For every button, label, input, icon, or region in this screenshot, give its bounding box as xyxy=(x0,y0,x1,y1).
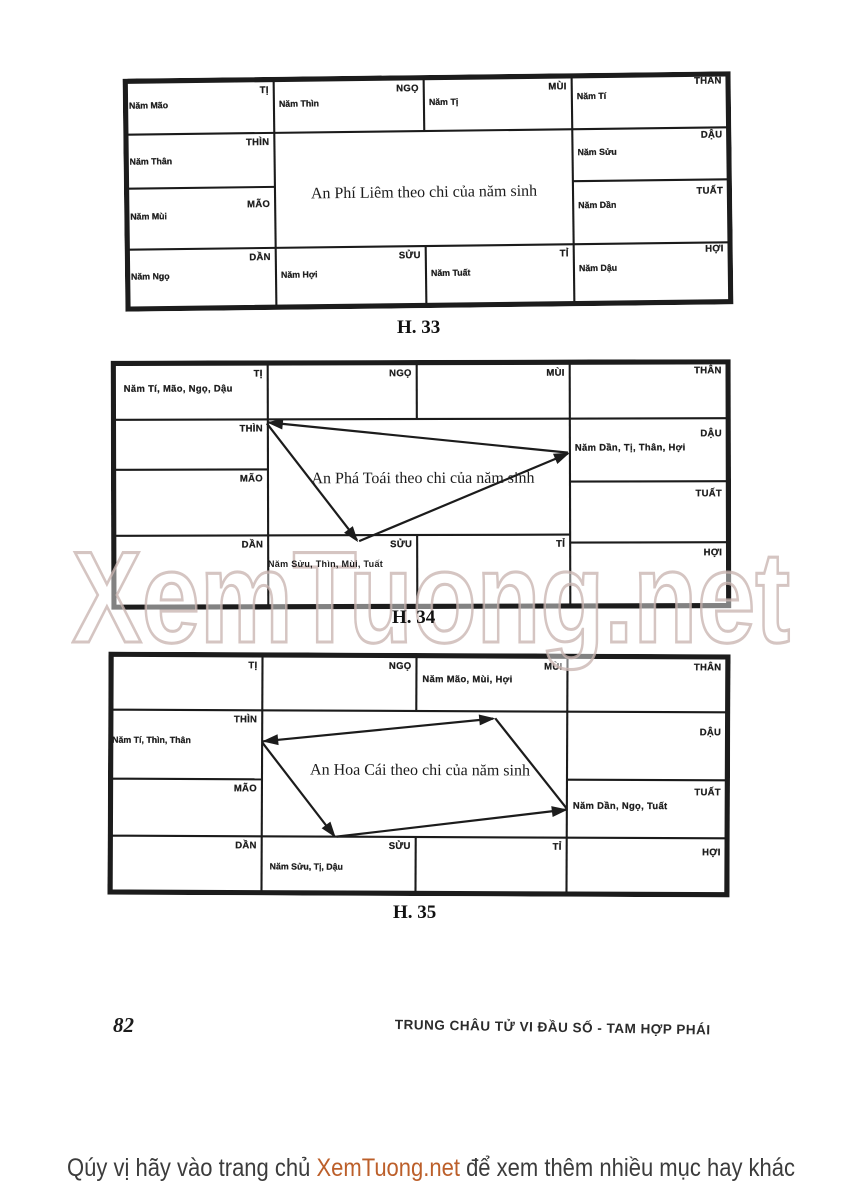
svg-text:An Hoa Cái theo chi của năm si: An Hoa Cái theo chi của năm sinh xyxy=(310,762,530,780)
svg-text:Năm Mùi: Năm Mùi xyxy=(130,211,167,221)
svg-text:Năm Sửu, Tị, Dậu: Năm Sửu, Tị, Dậu xyxy=(270,861,343,871)
svg-text:SỬU: SỬU xyxy=(389,840,411,852)
svg-text:THÂN: THÂN xyxy=(694,74,722,86)
svg-text:MÃO: MÃO xyxy=(234,783,257,794)
svg-text:Năm Tị: Năm Tị xyxy=(429,97,458,107)
svg-text:Năm Dậu: Năm Dậu xyxy=(579,263,617,273)
svg-text:Năm Mão: Năm Mão xyxy=(129,100,169,110)
svg-text:TUẤT: TUẤT xyxy=(694,787,721,798)
svg-text:Năm Tí, Thìn, Thân: Năm Tí, Thìn, Thân xyxy=(112,735,191,745)
svg-text:Năm Dần, Ngọ, Tuất: Năm Dần, Ngọ, Tuất xyxy=(573,800,668,811)
svg-text:Năm Ngọ: Năm Ngọ xyxy=(131,271,170,281)
svg-text:Năm Tí: Năm Tí xyxy=(577,91,607,101)
svg-text:DẬU: DẬU xyxy=(700,726,722,738)
svg-text:Năm Thân: Năm Thân xyxy=(130,156,173,167)
svg-text:An Phí Liêm theo chi của năm s: An Phí Liêm theo chi của năm sinh xyxy=(311,183,537,203)
svg-text:An Phá Toái theo chi của năm s: An Phá Toái theo chi của năm sinh xyxy=(311,470,534,488)
svg-text:TỊ: TỊ xyxy=(260,85,269,96)
svg-text:Năm Dần, Tị, Thân, Hợi: Năm Dần, Tị, Thân, Hợi xyxy=(575,441,686,452)
svg-text:Năm Tí, Mão, Ngọ, Dậu: Năm Tí, Mão, Ngọ, Dậu xyxy=(124,382,233,393)
svg-text:MÙI: MÙI xyxy=(546,367,564,379)
svg-text:THÌN: THÌN xyxy=(239,423,262,434)
svg-text:Năm Mão, Mùi, Hợi: Năm Mão, Mùi, Hợi xyxy=(422,673,512,684)
svg-text:SỬU: SỬU xyxy=(399,249,421,261)
svg-text:NGỌ: NGỌ xyxy=(396,83,419,94)
svg-text:HỢI: HỢI xyxy=(702,847,721,858)
svg-text:MÃO: MÃO xyxy=(240,473,263,484)
svg-text:TỊ: TỊ xyxy=(254,368,263,379)
svg-text:Năm Thìn: Năm Thìn xyxy=(279,98,319,108)
svg-text:HỢI: HỢI xyxy=(705,243,724,254)
svg-text:TUẤT: TUẤT xyxy=(695,488,722,499)
svg-text:Năm Tuất: Năm Tuất xyxy=(431,267,471,277)
svg-text:DẦN: DẦN xyxy=(235,840,257,851)
svg-text:THÌN: THÌN xyxy=(246,137,270,148)
svg-text:Năm Dần: Năm Dần xyxy=(578,200,616,210)
svg-text:MÃO: MÃO xyxy=(247,199,270,210)
svg-text:DẦN: DẦN xyxy=(249,252,271,263)
svg-text:TỈ: TỈ xyxy=(553,841,562,853)
svg-text:THÌN: THÌN xyxy=(234,714,257,725)
svg-text:Năm Hợi: Năm Hợi xyxy=(281,269,318,279)
svg-text:DẬU: DẬU xyxy=(701,128,723,140)
svg-text:Năm Sửu: Năm Sửu xyxy=(577,147,616,157)
svg-text:TUẤT: TUẤT xyxy=(696,185,723,196)
svg-text:NGỌ: NGỌ xyxy=(389,368,412,379)
svg-text:DẬU: DẬU xyxy=(700,427,722,439)
svg-text:TỈ: TỈ xyxy=(560,247,569,259)
svg-text:THÂN: THÂN xyxy=(694,364,722,376)
svg-text:MÙI: MÙI xyxy=(548,80,566,92)
